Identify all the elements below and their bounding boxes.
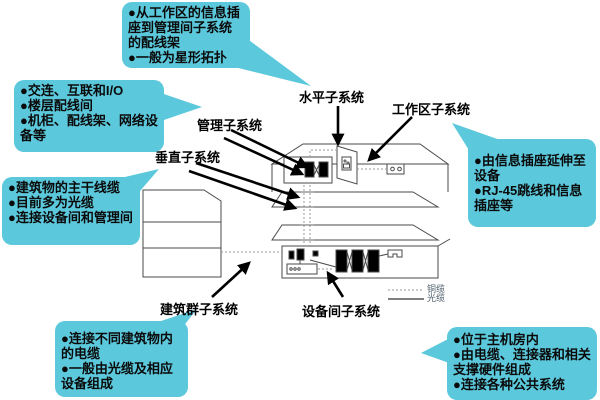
callout-item: ●RJ-45跳线和信息插座等: [474, 183, 590, 213]
equip-shelf: [287, 264, 317, 274]
secondary-building: [143, 190, 221, 277]
rack-3: [368, 250, 379, 272]
callout-item: ●连接各种公共系统: [453, 377, 591, 392]
callout-item: ●目前多为光缆: [8, 195, 134, 210]
ground-floor-bevel: [438, 239, 450, 246]
equip-small-3: [313, 251, 318, 256]
equip-small-1: [289, 251, 294, 259]
rack-1: [336, 250, 347, 272]
callout-item: ●一般为星形拓扑: [128, 50, 244, 65]
callout-horizontal-subsystem-notes: ●从工作区的信息插座到管理间子系统的配线架 ●一般为星形拓扑: [122, 2, 250, 68]
callout-item: ●交连、互联和I/O: [20, 83, 158, 98]
legend-lines: [388, 290, 424, 299]
tail-management-notes: [158, 92, 202, 122]
callout-item: ●由信息插座延伸至设备: [474, 153, 590, 183]
floor-slab-2: [272, 225, 438, 240]
label-campus-subsystem: 建筑群子系统: [160, 299, 238, 318]
rack-2: [352, 250, 363, 272]
label-vertical-subsystem: 垂直子系统: [155, 147, 220, 166]
structured-cabling-diagram: 水平子系统 工作区子系统 管理子系统 垂直子系统 建筑群子系统 设备间子系统 ●…: [0, 0, 600, 400]
callout-campus-subsystem-notes: ●连接不同建筑物内的电缆 ●一般由光缆及相应设备组成: [55, 321, 188, 397]
callout-management-subsystem-notes: ●交连、互联和I/O ●楼层配线间 ●机柜、配线架、网络设备等: [14, 80, 164, 152]
callout-item: ●一般由光缆及相应设备组成: [61, 361, 182, 391]
floor-slab-1: [272, 192, 438, 207]
callout-item: ●连接不同建筑物内的电缆: [61, 331, 182, 361]
label-management-subsystem: 管理子系统: [197, 115, 262, 134]
callout-work-area-subsystem-notes: ●由信息插座延伸至设备 ●RJ-45跳线和信息插座等: [468, 139, 596, 227]
callout-item: ●连接设备间和管理间: [8, 210, 134, 225]
callout-item: ●位于主机房内: [453, 332, 591, 347]
patch-device-1: [305, 162, 314, 177]
callout-item: ●楼层配线间: [20, 98, 158, 113]
equip-small-2: [297, 249, 304, 260]
patch-device-2: [319, 162, 328, 177]
label-work-area-subsystem: 工作区子系统: [392, 99, 470, 118]
callout-vertical-subsystem-notes: ●建筑物的主干线缆 ●目前多为光缆 ●连接设备间和管理间: [2, 177, 140, 245]
callout-item: ●从工作区的信息插座到管理间子系统的配线架: [128, 5, 244, 50]
callout-equipment-room-subsystem-notes: ●位于主机房内 ●由电缆、连接器和相关支撑硬件组成 ●连接各种公共系统: [447, 327, 597, 400]
legend-fiber-label: 光缆: [427, 294, 445, 303]
callout-item: ●建筑物的主干线缆: [8, 180, 134, 195]
callout-item: ●机柜、配线架、网络设备等: [20, 113, 158, 143]
callout-item: ●由电缆、连接器和相关支撑硬件组成: [453, 347, 591, 377]
label-equipment-room-subsystem: 设备间子系统: [302, 301, 380, 320]
label-horizontal-subsystem: 水平子系统: [299, 87, 364, 106]
